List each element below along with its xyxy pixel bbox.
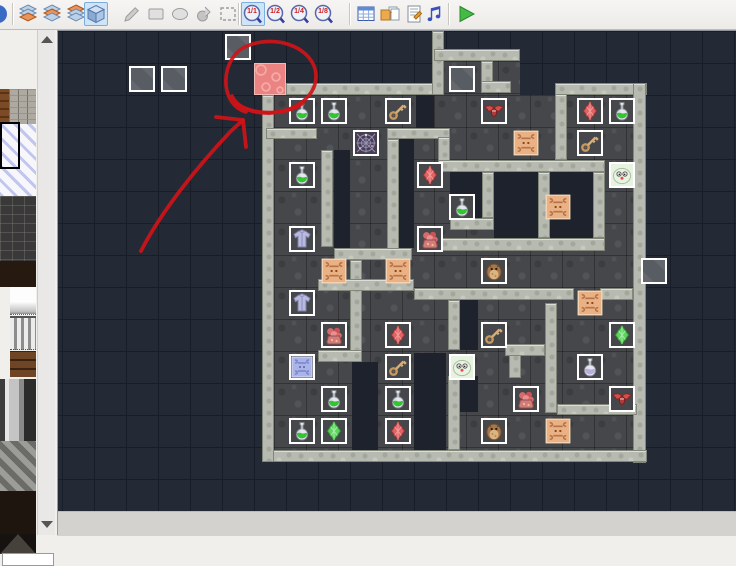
wall-segment xyxy=(438,238,605,251)
rug-tile-orange xyxy=(513,130,539,156)
wall-segment xyxy=(545,303,557,413)
wall-segment xyxy=(434,49,520,61)
event-potion-green[interactable] xyxy=(289,162,315,188)
event-bat[interactable] xyxy=(609,386,635,412)
event-gray[interactable] xyxy=(225,34,251,60)
event-potion-green[interactable] xyxy=(321,386,347,412)
zoom-label: 1/8 xyxy=(314,7,332,16)
event-key[interactable] xyxy=(385,98,411,124)
wall-segment xyxy=(438,160,605,172)
void-channel xyxy=(460,376,478,412)
wall-segment xyxy=(262,95,274,462)
toolbar-separator xyxy=(448,3,450,25)
wall-segment xyxy=(448,300,460,350)
event-potion-green[interactable] xyxy=(321,98,347,124)
void-channel xyxy=(460,300,478,350)
void-channel xyxy=(399,139,414,248)
all-layers-button[interactable] xyxy=(84,2,108,26)
map-canvas[interactable] xyxy=(57,31,736,511)
event-key[interactable] xyxy=(577,130,603,156)
zoom-1-4-button[interactable]: 1/4 xyxy=(289,3,311,25)
event-potion-green[interactable] xyxy=(289,98,315,124)
event-slime[interactable] xyxy=(609,162,635,188)
zoom-label: 1/1 xyxy=(243,7,261,16)
event-crystal-red[interactable] xyxy=(417,162,443,188)
rug-tile-orange xyxy=(321,258,347,284)
event-bag-red[interactable] xyxy=(321,322,347,348)
wall-segment xyxy=(266,128,317,139)
wall-segment xyxy=(593,172,605,238)
event-crystal-red[interactable] xyxy=(385,418,411,444)
palette-tile-darkfloor[interactable] xyxy=(0,491,36,534)
toolbar-separator xyxy=(349,3,351,25)
playtest-button[interactable] xyxy=(455,3,477,25)
event-rug-blue[interactable] xyxy=(289,354,315,380)
event-potion-green[interactable] xyxy=(449,194,475,220)
event-bag-red[interactable] xyxy=(417,226,443,252)
horizontal-scrollbar[interactable] xyxy=(57,511,736,536)
void-channel xyxy=(334,150,350,248)
event-potion-green[interactable] xyxy=(289,418,315,444)
event-key[interactable] xyxy=(385,354,411,380)
event-potion-purple[interactable] xyxy=(577,354,603,380)
wall-segment xyxy=(555,94,567,160)
zoom-1-8-button[interactable]: 1/8 xyxy=(313,3,335,25)
wall-segment xyxy=(448,376,460,450)
event-owl[interactable] xyxy=(481,418,507,444)
wrong-pink-lava-tile xyxy=(254,63,286,95)
void-channel xyxy=(352,362,378,450)
event-bag-red[interactable] xyxy=(513,386,539,412)
pencil-tool-button xyxy=(121,3,143,25)
event-gray[interactable] xyxy=(641,258,667,284)
palette-tile-darkstone[interactable] xyxy=(0,196,36,261)
palette-tile-pillar[interactable] xyxy=(0,379,36,441)
palette-next-row[interactable] xyxy=(2,553,54,566)
rug-tile-orange xyxy=(545,194,571,220)
zoom-label: 1/4 xyxy=(290,7,308,16)
palette-tile-bricks[interactable] xyxy=(9,89,36,124)
event-armor[interactable] xyxy=(289,226,315,252)
event-crystal-red[interactable] xyxy=(385,322,411,348)
event-crystal-green[interactable] xyxy=(321,418,347,444)
event-key[interactable] xyxy=(481,322,507,348)
palette-tile-darkbrown[interactable] xyxy=(0,261,36,287)
event-gray[interactable] xyxy=(449,66,475,92)
palette-tile-hatch[interactable] xyxy=(0,441,36,491)
palette-tile-bars[interactable] xyxy=(10,316,36,350)
script-button[interactable] xyxy=(403,3,425,25)
event-gray[interactable] xyxy=(161,66,187,92)
event-potion-green[interactable] xyxy=(385,386,411,412)
wall-segment xyxy=(350,260,362,351)
event-gray[interactable] xyxy=(129,66,155,92)
wall-segment xyxy=(481,81,511,93)
wall-segment xyxy=(262,450,647,462)
event-bat[interactable] xyxy=(481,98,507,124)
event-web[interactable] xyxy=(353,130,379,156)
wall-segment xyxy=(387,139,399,259)
event-potion-green[interactable] xyxy=(609,98,635,124)
wall-segment xyxy=(482,172,494,218)
zoom-1-2-button[interactable]: 1/2 xyxy=(265,3,287,25)
scroll-down-icon[interactable] xyxy=(41,521,53,528)
palette-tile-pyramid[interactable] xyxy=(0,534,36,554)
palette-tile-white[interactable] xyxy=(10,287,36,315)
toolbar-separator xyxy=(12,3,14,25)
toolbar: 1/11/21/41/8 xyxy=(0,0,736,30)
void-channel xyxy=(414,353,446,450)
scroll-up-icon[interactable] xyxy=(41,36,53,43)
void-channel xyxy=(416,95,434,128)
sound-button[interactable] xyxy=(424,3,446,25)
database-button[interactable] xyxy=(355,3,377,25)
void-channel xyxy=(494,172,538,238)
tileset-panel[interactable] xyxy=(0,29,58,535)
sphere-icon[interactable] xyxy=(0,3,9,25)
palette-tile-shelf[interactable] xyxy=(10,351,36,377)
rug-tile-orange xyxy=(385,258,411,284)
wall-segment xyxy=(432,31,444,95)
fill-tool-button xyxy=(193,3,215,25)
ellipse-tool-button xyxy=(169,3,191,25)
palette-tile-wood[interactable] xyxy=(0,89,9,124)
zoom-label: 1/2 xyxy=(266,7,284,16)
layer1-button[interactable] xyxy=(17,3,39,25)
select-tool-button xyxy=(217,3,239,25)
layer2-button[interactable] xyxy=(41,3,63,25)
palette-selection-border xyxy=(0,122,20,169)
zoom-1-1-button[interactable]: 1/1 xyxy=(241,2,265,26)
wall-segment xyxy=(505,344,545,356)
resources-button[interactable] xyxy=(379,3,401,25)
wall-segment xyxy=(600,288,633,300)
wall-segment xyxy=(321,150,333,247)
event-armor[interactable] xyxy=(289,290,315,316)
event-crystal-red[interactable] xyxy=(577,98,603,124)
event-crystal-green[interactable] xyxy=(609,322,635,348)
wall-segment xyxy=(286,83,434,95)
event-slime[interactable] xyxy=(449,354,475,380)
rectangle-tool-button xyxy=(145,3,167,25)
rug-tile-orange xyxy=(577,290,603,316)
toolbar-separator xyxy=(238,3,240,25)
map-editor-window: { "app": {"title": "Tile map editor with… xyxy=(0,0,736,535)
wall-segment xyxy=(318,350,362,362)
wall-segment xyxy=(414,288,574,300)
event-owl[interactable] xyxy=(481,258,507,284)
tileset-scrollbar[interactable] xyxy=(37,29,55,535)
rug-tile-orange xyxy=(545,418,571,444)
